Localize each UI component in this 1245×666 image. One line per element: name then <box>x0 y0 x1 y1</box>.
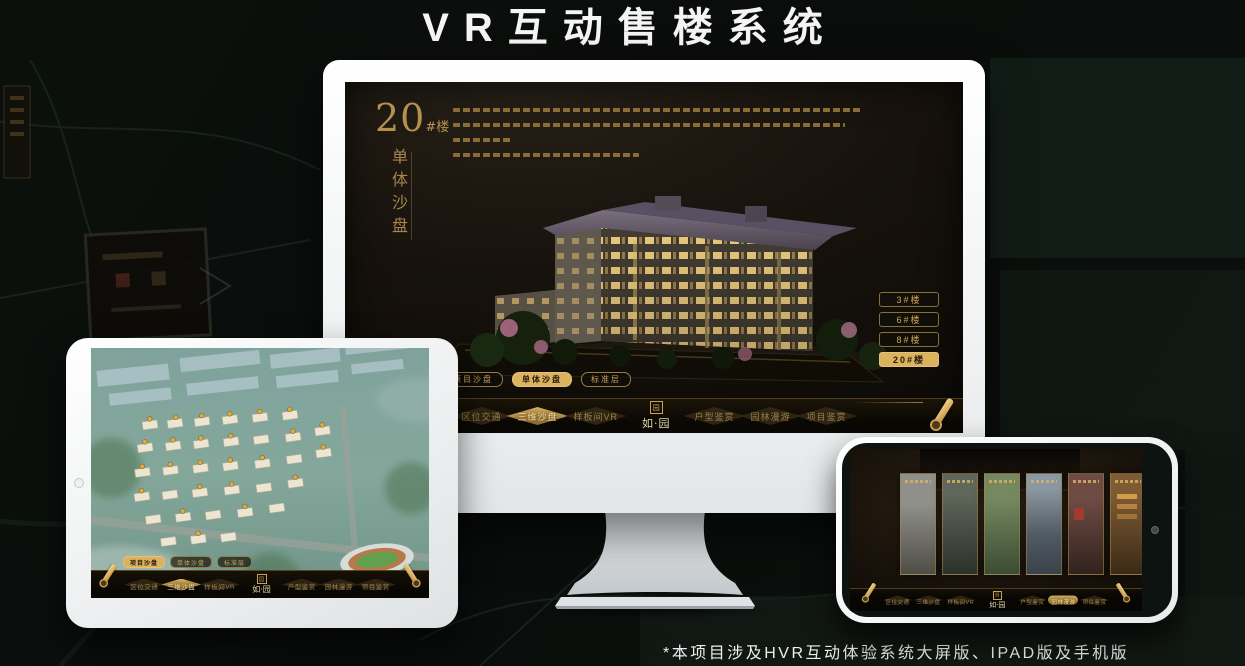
scroll-handle-icon[interactable] <box>99 564 118 587</box>
tab-label: 标准层 <box>224 558 245 567</box>
gallery-panel[interactable] <box>1110 473 1142 575</box>
tab-standard-floor[interactable]: 标准层 <box>217 556 252 568</box>
nav-label: 三维沙盘 <box>517 412 557 422</box>
tab-label: 单体沙盘 <box>177 558 205 567</box>
building-number: 20 <box>375 96 425 140</box>
panel-accent <box>1117 494 1137 499</box>
nav-label: 项目鉴赏 <box>362 584 390 591</box>
nav-item-3d-sandtable[interactable]: 三维沙盘 <box>167 576 195 594</box>
nav-label: 园林漫游 <box>751 412 791 422</box>
nav-label: 三维沙盘 <box>917 600 941 606</box>
nav-item-project-gallery[interactable]: 项目鉴赏 <box>807 407 847 425</box>
nav-label: 户型鉴赏 <box>1020 600 1044 606</box>
phone-camera-icon <box>1151 526 1159 534</box>
nav-label: 区位交通 <box>461 412 501 422</box>
tab-single-sandtable[interactable]: 单体沙盘 <box>512 372 572 387</box>
page: VR互动售楼系统 20#楼 单体沙盘 <box>0 0 1245 666</box>
tab-label: 单体沙盘 <box>522 374 562 385</box>
scroll-handle-icon[interactable] <box>929 399 955 431</box>
ruyuan-seal-icon: 园 <box>257 574 267 584</box>
gallery-panel[interactable] <box>900 473 936 575</box>
nav-label: 园林漫游 <box>325 584 353 591</box>
tablet-device: 项目沙盘 单体沙盘 标准层 区位交通 三维沙盘 样板间VR 园 如·园 户型鉴赏… <box>66 338 458 628</box>
nav-item-garden-tour[interactable]: 园林漫游 <box>751 407 791 425</box>
nav-label: 样板间VR <box>204 584 235 591</box>
nav-label: 三维沙盘 <box>167 584 195 591</box>
tablet-camera-icon <box>74 478 84 488</box>
scroll-handle-icon[interactable] <box>861 583 877 602</box>
nav-label: 样板间VR <box>948 600 975 606</box>
floor-selector: 3#楼 6#楼 8#楼 20#楼 <box>879 292 939 367</box>
tablet-view-tabs: 项目沙盘 单体沙盘 标准层 <box>91 556 429 568</box>
view-tabs: 项目沙盘 单体沙盘 标准层 <box>443 372 631 387</box>
nav-item-floorplans[interactable]: 户型鉴赏 <box>695 407 735 425</box>
nav-item-location[interactable]: 区位交通 <box>461 407 501 425</box>
ruyuan-logo: 园 如·园 <box>642 401 671 431</box>
nav-item-location[interactable]: 区位交通 <box>130 576 158 594</box>
gallery-panel[interactable] <box>1068 473 1104 575</box>
ruyuan-seal-icon: 园 <box>993 591 1002 600</box>
panel-accent <box>1074 508 1084 520</box>
nav-item-garden-tour[interactable]: 园林漫游 <box>1051 591 1075 609</box>
nav-item-showroom-vr[interactable]: 样板间VR <box>948 591 975 609</box>
gallery-panel[interactable] <box>984 473 1020 575</box>
nav-item-3d-sandtable[interactable]: 三维沙盘 <box>917 591 941 609</box>
scroll-line <box>853 402 923 403</box>
floor-button-label: 6#楼 <box>896 313 921 326</box>
building-number-unit: #楼 <box>425 120 449 135</box>
scroll-handle-icon[interactable] <box>403 564 422 587</box>
tab-label: 项目沙盘 <box>130 558 158 567</box>
nav-item-showroom-vr[interactable]: 样板间VR <box>204 576 235 594</box>
nav-item-showroom-vr[interactable]: 样板间VR <box>573 407 618 425</box>
ruyuan-seal-icon: 园 <box>650 401 663 414</box>
nav-item-3d-sandtable[interactable]: 三维沙盘 <box>517 407 557 425</box>
intro-line <box>453 108 861 112</box>
gallery-panel[interactable] <box>1026 473 1062 575</box>
ruyuan-logo: 园 如·园 <box>252 574 271 595</box>
nav-item-floorplans[interactable]: 户型鉴赏 <box>288 576 316 594</box>
nav-label: 项目鉴赏 <box>807 412 847 422</box>
tab-project-sandtable[interactable]: 项目沙盘 <box>123 556 165 568</box>
nav-label: 户型鉴赏 <box>695 412 735 422</box>
floor-button-3[interactable]: 3#楼 <box>879 292 939 307</box>
phone-device: 区位交通 三维沙盘 样板间VR 园 如·园 户型鉴赏 园林漫游 项目鉴赏 <box>836 437 1178 623</box>
floor-button-20[interactable]: 20#楼 <box>879 352 939 367</box>
logo-text: 如·园 <box>989 600 1005 610</box>
floor-button-label: 8#楼 <box>896 333 921 346</box>
intro-line <box>453 123 845 127</box>
phone-nav-bar: 区位交通 三维沙盘 样板间VR 园 如·园 户型鉴赏 园林漫游 项目鉴赏 <box>850 588 1142 611</box>
tab-label: 标准层 <box>591 374 621 385</box>
ruyuan-logo: 园 如·园 <box>989 591 1005 610</box>
nav-item-project-gallery[interactable]: 项目鉴赏 <box>1082 591 1106 609</box>
tablet-screen: 项目沙盘 单体沙盘 标准层 区位交通 三维沙盘 样板间VR 园 如·园 户型鉴赏… <box>91 348 429 598</box>
monitor-stand <box>545 511 765 611</box>
nav-label: 户型鉴赏 <box>288 584 316 591</box>
nav-label: 园林漫游 <box>1051 600 1075 606</box>
tablet-nav-wrap: 项目沙盘 单体沙盘 标准层 区位交通 三维沙盘 样板间VR 园 如·园 户型鉴赏… <box>91 556 429 598</box>
tablet-nav-bar: 区位交通 三维沙盘 样板间VR 园 如·园 户型鉴赏 园林漫游 项目鉴赏 <box>91 570 429 598</box>
intro-line <box>453 138 511 142</box>
logo-text: 如·园 <box>642 415 671 431</box>
building-headline: 20#楼 <box>375 98 449 138</box>
building-render[interactable] <box>405 144 915 392</box>
floor-button-label: 3#楼 <box>896 293 921 306</box>
scroll-handle-icon[interactable] <box>1115 583 1131 602</box>
floor-button-6[interactable]: 6#楼 <box>879 312 939 327</box>
tab-single-sandtable[interactable]: 单体沙盘 <box>170 556 212 568</box>
nav-item-project-gallery[interactable]: 项目鉴赏 <box>362 576 390 594</box>
nav-label: 区位交通 <box>886 600 910 606</box>
phone-screen: 区位交通 三维沙盘 样板间VR 园 如·园 户型鉴赏 园林漫游 项目鉴赏 <box>850 449 1142 611</box>
footnote: *本项目涉及HVR互动体验系统大屏版、IPAD版及手机版 <box>663 639 1129 663</box>
tab-standard-floor[interactable]: 标准层 <box>581 372 631 387</box>
logo-text: 如·园 <box>252 584 271 595</box>
nav-label: 样板间VR <box>573 412 618 422</box>
nav-item-garden-tour[interactable]: 园林漫游 <box>325 576 353 594</box>
nav-item-location[interactable]: 区位交通 <box>886 591 910 609</box>
nav-label: 区位交通 <box>130 584 158 591</box>
floor-button-8[interactable]: 8#楼 <box>879 332 939 347</box>
nav-item-floorplans[interactable]: 户型鉴赏 <box>1020 591 1044 609</box>
floor-button-label: 20#楼 <box>893 353 925 366</box>
nav-label: 项目鉴赏 <box>1082 600 1106 606</box>
phone-body: 区位交通 三维沙盘 样板间VR 园 如·园 户型鉴赏 园林漫游 项目鉴赏 <box>842 443 1172 617</box>
gallery-panel[interactable] <box>942 473 978 575</box>
page-title: VR互动售楼系统 <box>0 0 1245 56</box>
tab-label: 项目沙盘 <box>453 374 493 385</box>
